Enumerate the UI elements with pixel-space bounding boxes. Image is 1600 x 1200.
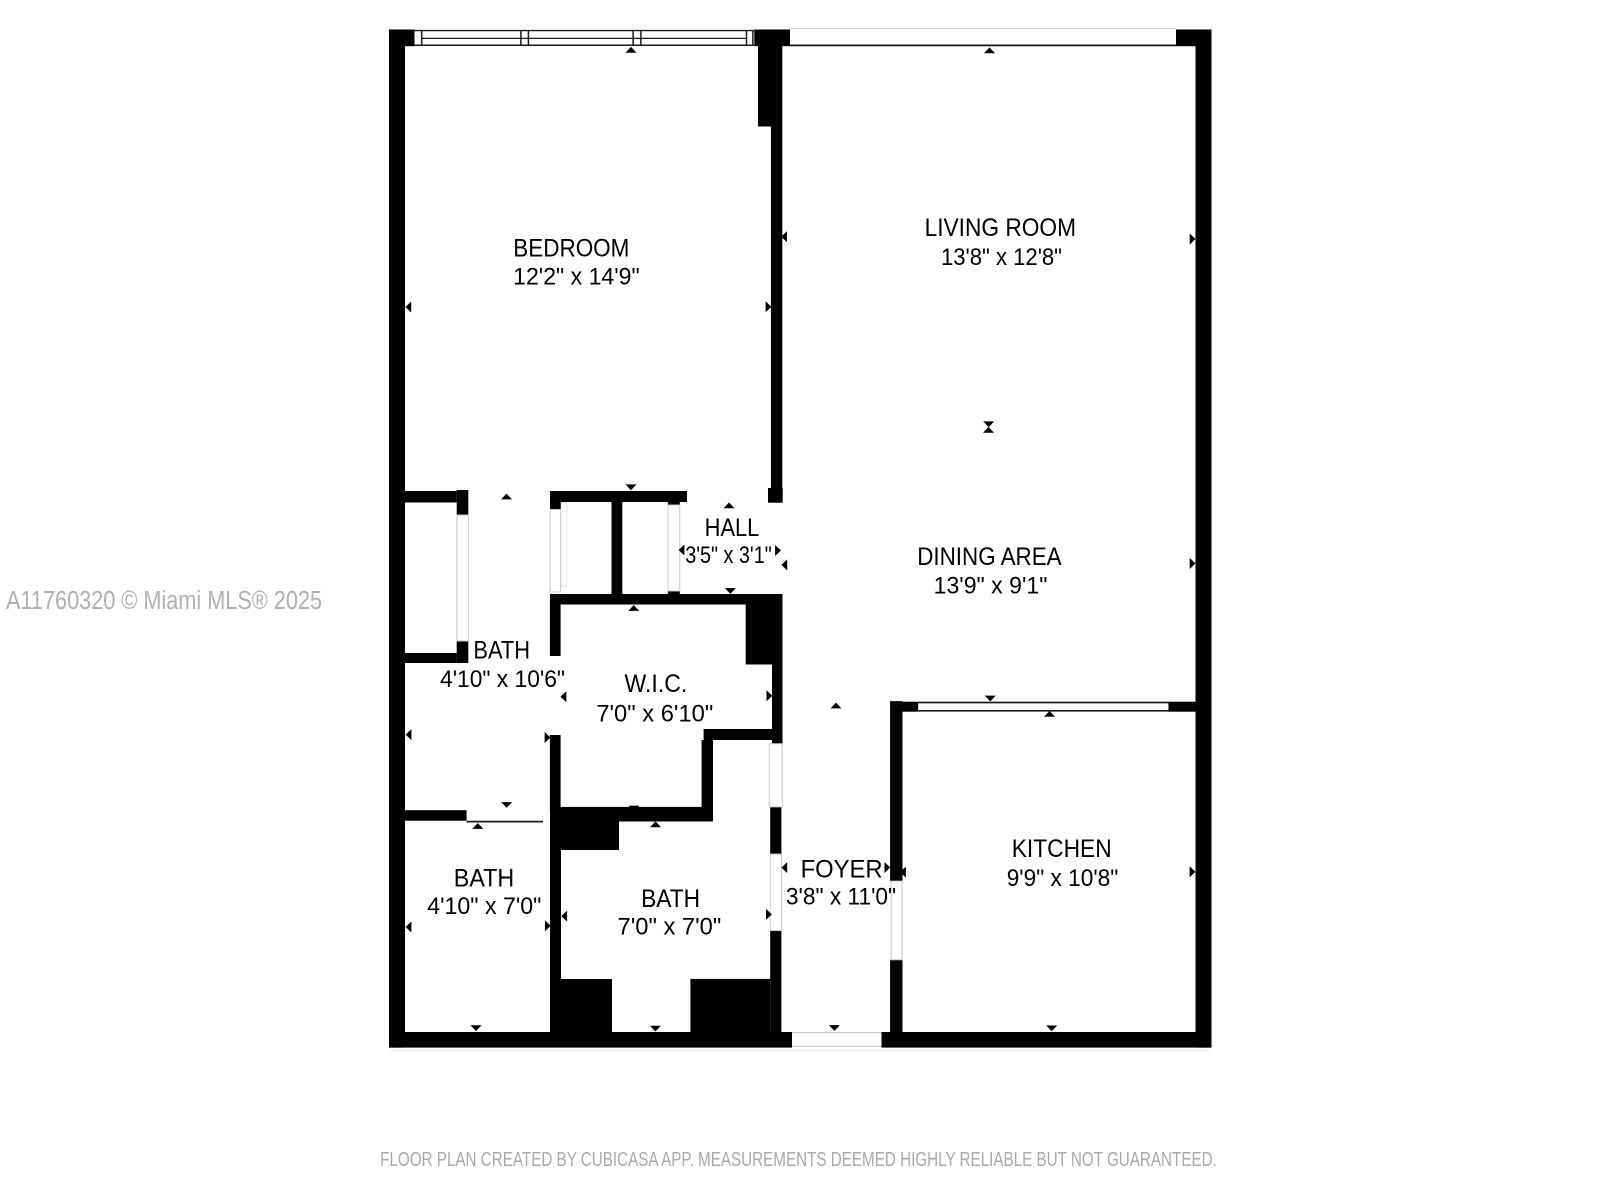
svg-text:W.I.C.: W.I.C.	[625, 670, 688, 698]
svg-text:13'8" x 12'8": 13'8" x 12'8"	[941, 243, 1062, 270]
svg-text:KITCHEN: KITCHEN	[1012, 835, 1112, 863]
svg-text:3'5" x 3'1": 3'5" x 3'1"	[685, 541, 771, 568]
svg-text:FLOOR PLAN CREATED BY CUBICASA: FLOOR PLAN CREATED BY CUBICASA APP. MEAS…	[380, 1148, 1217, 1171]
svg-text:12'2" x 14'9": 12'2" x 14'9"	[513, 263, 640, 289]
svg-text:9'9" x 10'8": 9'9" x 10'8"	[1007, 864, 1119, 891]
svg-text:HALL: HALL	[705, 514, 760, 542]
svg-text:DINING AREA: DINING AREA	[917, 544, 1061, 571]
svg-text:4'10" x 10'6": 4'10" x 10'6"	[440, 665, 565, 692]
svg-text:7'0" x 6'10": 7'0" x 6'10"	[596, 700, 713, 727]
svg-text:4'10" x 7'0": 4'10" x 7'0"	[427, 893, 541, 919]
svg-text:3'8" x 11'0": 3'8" x 11'0"	[786, 883, 896, 910]
svg-text:BEDROOM: BEDROOM	[513, 234, 629, 262]
svg-text:BATH: BATH	[641, 885, 700, 913]
svg-text:LIVING ROOM: LIVING ROOM	[925, 214, 1076, 242]
svg-text:BATH: BATH	[454, 865, 514, 893]
svg-text:FOYER: FOYER	[801, 856, 883, 884]
svg-text:7'0" x 7'0": 7'0" x 7'0"	[618, 913, 722, 940]
svg-text:BATH: BATH	[473, 636, 530, 664]
svg-text:13'9" x 9'1": 13'9" x 9'1"	[934, 572, 1048, 598]
svg-text:A11760320 © Miami MLS® 2025: A11760320 © Miami MLS® 2025	[6, 586, 322, 615]
